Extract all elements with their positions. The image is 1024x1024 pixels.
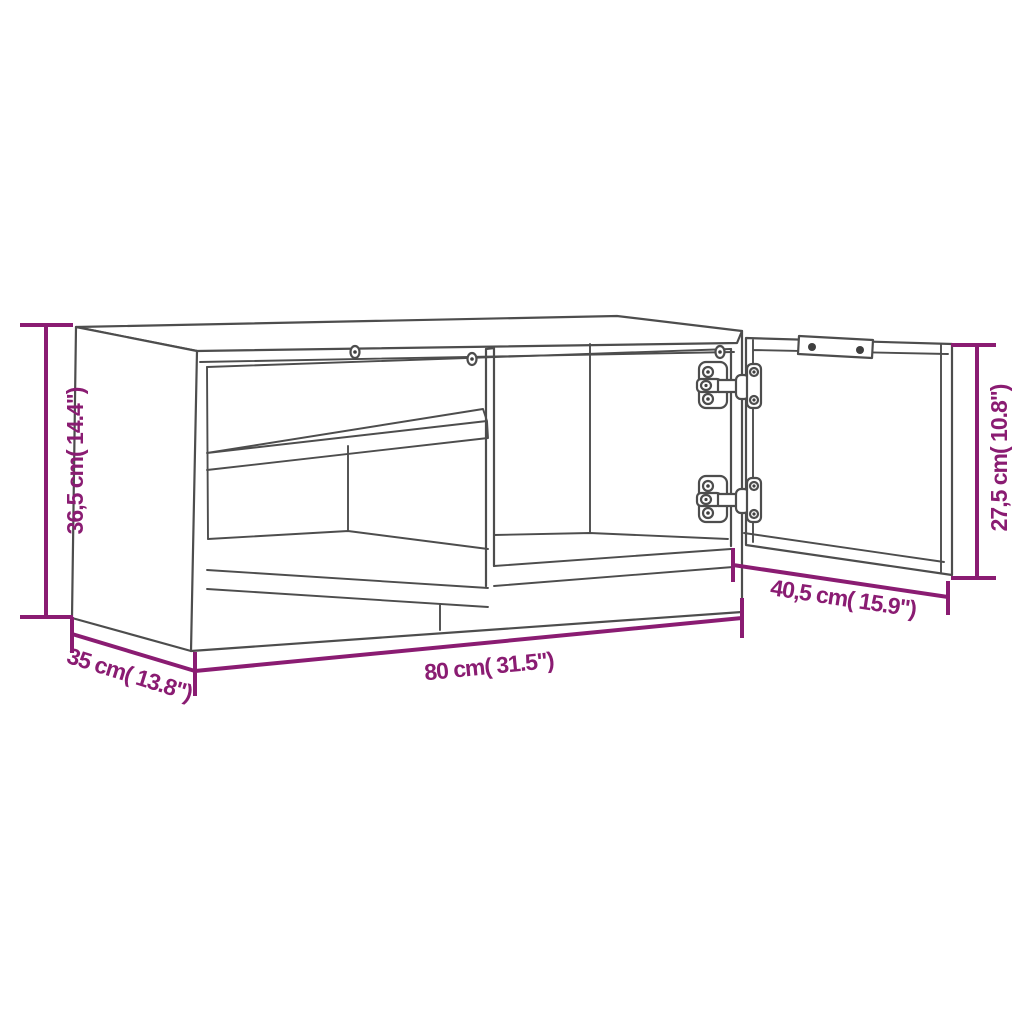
dim-label-height: 36,5 cm( 14.4") [62, 387, 88, 534]
cabinet-left-side-panel [72, 327, 208, 651]
door-mounting-plate [798, 336, 873, 358]
left-compartment-bottom [207, 446, 488, 607]
door-hinge-top [697, 362, 761, 408]
dim-label-door-height: 27,5 cm( 10.8") [986, 384, 1012, 531]
door-hinge-bottom [697, 476, 761, 522]
screw-hole [716, 346, 725, 358]
screw-hole [468, 353, 477, 365]
dimension-diagram: 36,5 cm( 14.4") 27,5 cm( 10.8") 80 cm( 3… [0, 0, 1024, 1024]
screw-hole [351, 346, 360, 358]
dim-line-width [195, 598, 742, 696]
right-compartment-bottom [494, 533, 733, 586]
dimension-diagram-canvas: 36,5 cm( 14.4") 27,5 cm( 10.8") 80 cm( 3… [0, 0, 1024, 1024]
center-divider [486, 348, 494, 586]
cabinet-open-door [744, 336, 952, 575]
dim-label-width: 80 cm( 31.5") [423, 647, 555, 686]
